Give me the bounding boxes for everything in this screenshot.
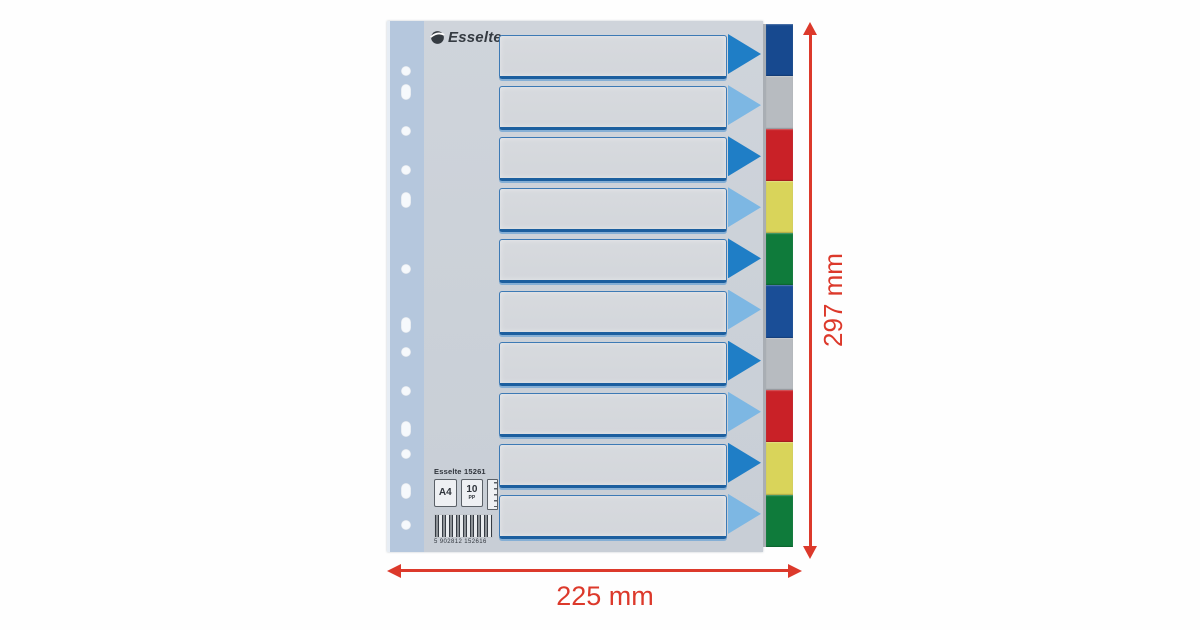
tab-column: [763, 24, 793, 547]
count-badge: 10 PP: [461, 479, 484, 507]
label-field-1: [499, 35, 727, 79]
width-dimension-line: [399, 569, 789, 572]
height-dimension-line: [809, 32, 812, 547]
brand-logo-text: Esselte: [448, 29, 502, 46]
tab-pointer-arrow-7: [728, 341, 761, 381]
label-field-8: [499, 393, 727, 437]
product-info: Esselte 15261 A4 10 PP 5 902812 152616: [434, 467, 498, 545]
spec-badges: A4 10 PP: [434, 479, 498, 510]
label-field-5: [499, 239, 727, 283]
tab-pointer-arrow-6: [728, 290, 761, 330]
index-tab-grey: [766, 76, 793, 128]
count-badge-unit: PP: [469, 496, 476, 501]
height-dimension-label: 297 mm: [818, 230, 848, 370]
product-code: Esselte 15261: [434, 467, 498, 476]
punch-hole-4: [401, 165, 411, 175]
punch-hole-7: [401, 317, 411, 333]
label-field-3: [499, 137, 727, 181]
punch-hole-3: [401, 126, 411, 136]
label-field-4: [499, 188, 727, 232]
punch-hole-8: [401, 347, 411, 357]
tab-pointer-arrow-8: [728, 392, 761, 432]
punch-hole-10: [401, 421, 411, 437]
index-tab-yellow-2: [766, 442, 793, 494]
label-field-6: [499, 291, 727, 335]
arrowhead-left-icon: [387, 564, 401, 578]
tab-pointer-arrow-5: [728, 238, 761, 278]
punch-hole-9: [401, 386, 411, 396]
punch-margin: [390, 21, 424, 552]
count-badge-text: 10: [466, 485, 477, 495]
product-image: Esselte Esselte 15261 A4 10 PP 5 902812 …: [0, 0, 1200, 630]
punch-hole-6: [401, 264, 411, 274]
label-field-10: [499, 495, 727, 539]
esselte-logo-icon: [430, 30, 445, 45]
punch-hole-13: [401, 520, 411, 530]
divider-sheet: Esselte Esselte 15261 A4 10 PP 5 902812 …: [387, 21, 763, 552]
register-tabs-icon: [487, 479, 498, 510]
label-field-7: [499, 342, 727, 386]
index-tab-yellow: [766, 181, 793, 233]
tab-pointer-arrow-10: [728, 494, 761, 534]
index-tab-blue-2: [766, 285, 793, 337]
index-tab-grey-2: [766, 338, 793, 390]
format-badge: A4: [434, 479, 457, 507]
tab-pointer-arrow-2: [728, 85, 761, 125]
punch-hole-5: [401, 192, 411, 208]
punch-hole-11: [401, 449, 411, 459]
index-tab-red-2: [766, 390, 793, 442]
arrowhead-right-icon: [788, 564, 802, 578]
label-field-2: [499, 86, 727, 130]
barcode: [434, 514, 493, 538]
arrowhead-up-icon: [803, 22, 817, 35]
tab-pointer-arrow-4: [728, 187, 761, 227]
tab-pointer-arrow-3: [728, 136, 761, 176]
format-badge-text: A4: [439, 488, 452, 498]
punch-hole-12: [401, 483, 411, 499]
index-tab-green: [766, 233, 793, 285]
tab-pointer-arrow-1: [728, 34, 761, 74]
arrowhead-down-icon: [803, 546, 817, 559]
brand-logo: Esselte: [430, 29, 502, 46]
punch-hole-2: [401, 84, 411, 100]
width-dimension-label: 225 mm: [500, 581, 710, 611]
index-tab-green-2: [766, 495, 793, 547]
label-field-9: [499, 444, 727, 488]
punch-hole-1: [401, 66, 411, 76]
index-tab-blue: [766, 24, 793, 76]
tab-pointer-arrow-9: [728, 443, 761, 483]
barcode-digits: 5 902812 152616: [434, 539, 498, 545]
index-tab-red: [766, 129, 793, 181]
